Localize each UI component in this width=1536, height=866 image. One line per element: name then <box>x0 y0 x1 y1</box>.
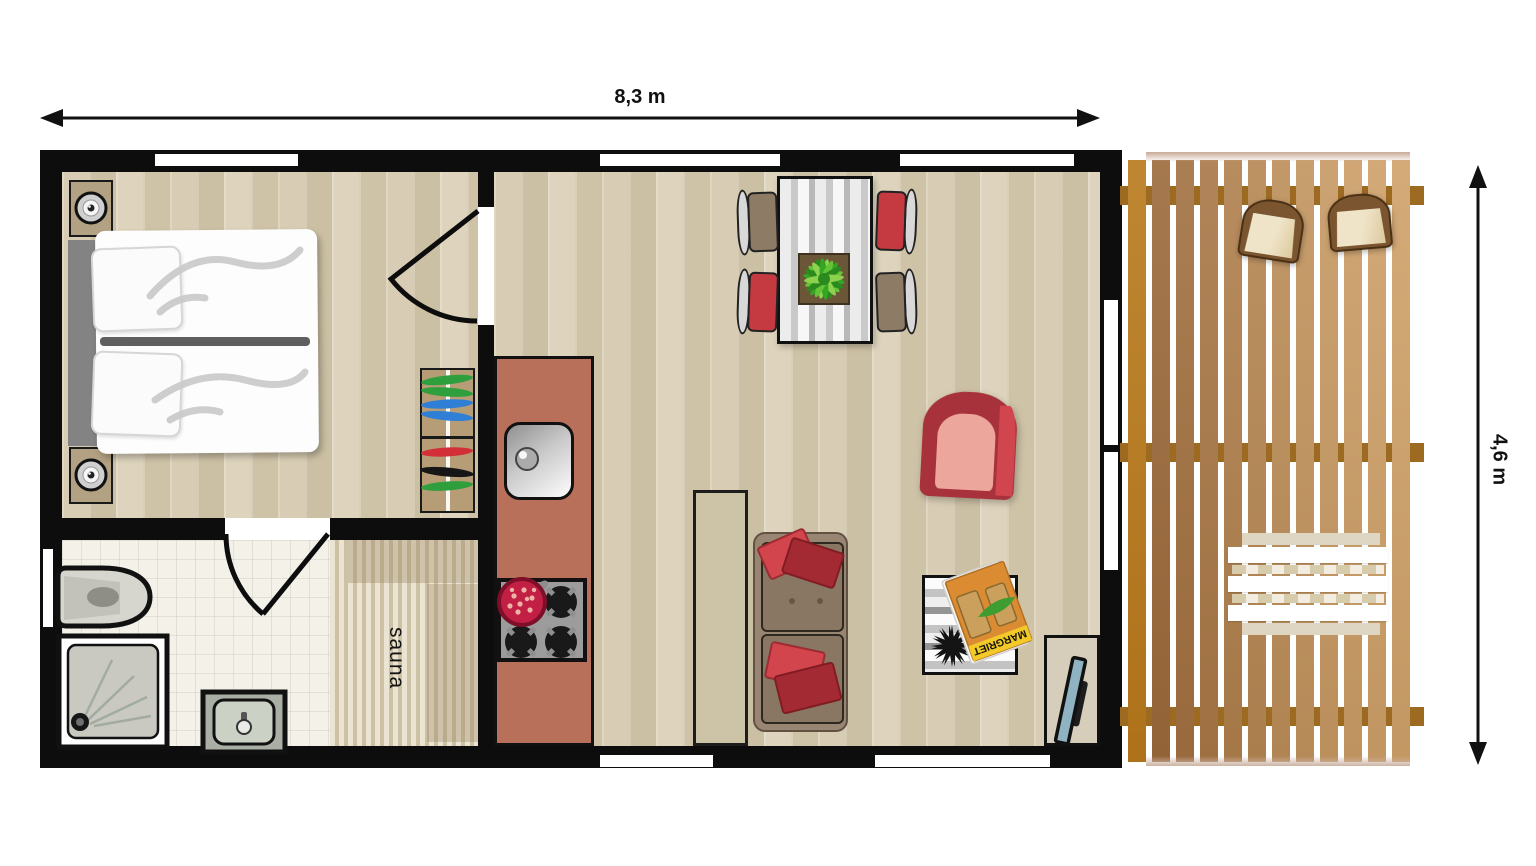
deck-edge <box>1146 152 1410 162</box>
window <box>600 154 780 166</box>
sideboard-cabinet <box>693 490 748 746</box>
picnic-table-slat <box>1242 623 1380 635</box>
deck-plank <box>1200 160 1218 762</box>
kitchen-sink <box>504 422 574 500</box>
dining-chair <box>738 188 782 255</box>
dining-table <box>777 176 873 344</box>
shelf-center-line <box>446 370 450 511</box>
armchair-seat <box>935 412 997 491</box>
deck-plank <box>1176 160 1194 762</box>
deck-chair <box>1326 191 1394 252</box>
deck-chair <box>1237 196 1308 265</box>
picnic-table-slat <box>1232 594 1384 603</box>
kitchen-counter <box>494 356 594 746</box>
armchair <box>919 390 1018 501</box>
cushion-button <box>789 598 795 604</box>
floor-plan: 8,3 m 4,6 m sauna <box>0 0 1536 866</box>
bathroom-floor <box>62 540 330 746</box>
chair-seat <box>747 272 779 333</box>
coffee-table <box>922 575 1018 675</box>
picnic-table-slat <box>1228 576 1388 592</box>
deck-plank <box>1128 160 1146 762</box>
chair-seat <box>875 190 907 251</box>
picnic-table-slat <box>1242 533 1380 545</box>
cushion-button <box>817 598 823 604</box>
bathroom-door-opening <box>225 518 330 540</box>
pillow <box>91 245 184 332</box>
sliding-door-pane <box>1104 300 1118 445</box>
window <box>43 549 53 627</box>
deck-plank <box>1368 160 1386 762</box>
duvet-divider <box>100 337 310 346</box>
window <box>875 755 1050 767</box>
vertical-dimension-arrow <box>1469 165 1487 765</box>
picnic-table-slat <box>1232 565 1384 574</box>
chair-seat <box>747 191 779 252</box>
window <box>155 154 298 166</box>
deck-plank <box>1152 160 1170 762</box>
stove <box>497 578 587 662</box>
sauna-bench-upper <box>348 540 478 583</box>
picnic-table-slat <box>1228 547 1388 563</box>
deck-plank <box>1392 160 1410 762</box>
horizontal-dimension-arrow <box>40 109 1100 127</box>
dining-chair <box>872 268 916 335</box>
deck-edge <box>1146 756 1410 766</box>
bedroom-door-opening <box>478 207 494 325</box>
window <box>600 755 713 767</box>
depth-dimension-label: 4,6 m <box>1486 405 1512 515</box>
chair-seat <box>875 272 907 333</box>
dining-chair <box>872 187 916 254</box>
width-dimension-label: 8,3 m <box>560 86 720 109</box>
sofa <box>753 532 848 732</box>
pillow <box>91 350 184 437</box>
dining-chair <box>738 268 782 335</box>
sliding-door-pane <box>1104 452 1118 570</box>
picnic-table-slat <box>1228 605 1388 621</box>
shelf-divider <box>420 436 475 439</box>
sauna-bench-side <box>427 584 478 742</box>
tv-stand <box>1044 635 1100 746</box>
sauna-room-label: sauna <box>378 616 414 700</box>
window <box>900 154 1074 166</box>
nightstand <box>69 447 113 504</box>
deck-chair-seat <box>1334 208 1386 247</box>
deck-chair-seat <box>1244 212 1298 258</box>
nightstand <box>69 180 113 237</box>
